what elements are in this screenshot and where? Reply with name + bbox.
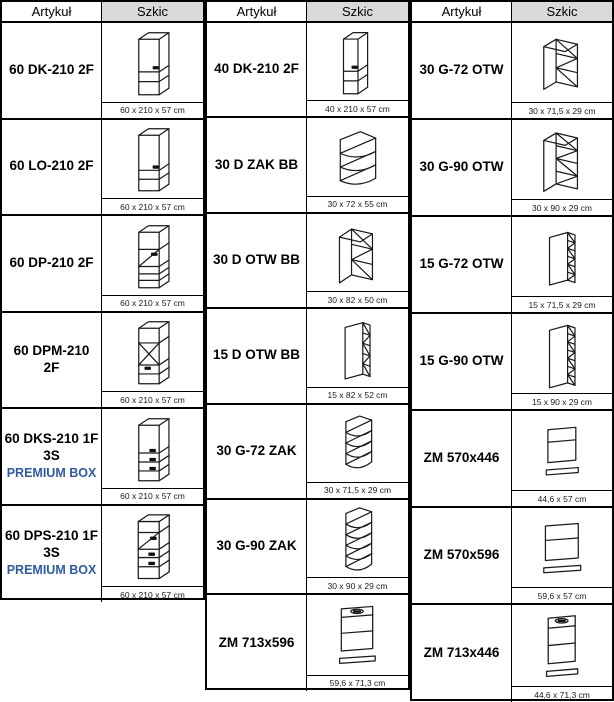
tall-lo-sketch bbox=[102, 120, 203, 199]
front-panel-handle-596-sketch bbox=[307, 595, 408, 674]
dimension-label: 30 x 71,5 x 29 cm bbox=[307, 482, 408, 498]
narrow-base-otw-sketch bbox=[307, 309, 408, 386]
corner-base-zak-sketch bbox=[307, 118, 408, 195]
open-wall-otw-90-sketch bbox=[512, 120, 612, 199]
product-sketch-cell: 44,6 x 57 cm bbox=[512, 411, 612, 506]
dimension-label: 60 x 210 x 57 cm bbox=[102, 198, 203, 214]
product-name-cell: 15 D OTW BB bbox=[207, 309, 307, 402]
dimension-label: 15 x 71,5 x 29 cm bbox=[512, 296, 612, 312]
dimension-label: 59,6 x 71,3 cm bbox=[307, 675, 408, 691]
header-row: Artykuł Szkic bbox=[412, 2, 612, 23]
product-rows: 60 DK-210 2F60 x 210 x 57 cm60 LO-210 2F… bbox=[2, 23, 203, 598]
open-wall-otw-72-sketch bbox=[512, 23, 612, 102]
product-sketch-cell: 59,6 x 71,3 cm bbox=[307, 595, 408, 690]
product-sketch-cell: 30 x 72 x 55 cm bbox=[307, 118, 408, 211]
product-name-cell: ZM 713x596 bbox=[207, 595, 307, 690]
dimension-label: 15 x 90 x 29 cm bbox=[512, 393, 612, 409]
product-sketch-cell: 30 x 82 x 50 cm bbox=[307, 214, 408, 307]
catalog-column-group-3: Artykuł Szkic 30 G-72 OTW30 x 71,5 x 29 … bbox=[410, 0, 614, 701]
product-sketch-cell: 60 x 210 x 57 cm bbox=[102, 216, 203, 311]
dimension-label: 30 x 90 x 29 cm bbox=[512, 199, 612, 215]
product-sketch-cell: 60 x 210 x 57 cm bbox=[102, 120, 203, 215]
product-name: ZM 713x446 bbox=[424, 645, 500, 662]
tall-dpm-sketch bbox=[102, 313, 203, 392]
product-name: 30 G-90 OTW bbox=[419, 159, 503, 176]
product-row: 60 DPS-210 1F 3SPREMIUM BOX60 x 210 x 57… bbox=[2, 506, 203, 603]
product-sketch-cell: 30 x 90 x 29 cm bbox=[307, 500, 408, 593]
product-row: 60 DP-210 2F60 x 210 x 57 cm bbox=[2, 216, 203, 313]
product-name: ZM 713x596 bbox=[219, 635, 295, 652]
corner-wall-zak-90-sketch bbox=[307, 500, 408, 577]
szkic-header: Szkic bbox=[512, 2, 612, 21]
product-rows: 30 G-72 OTW30 x 71,5 x 29 cm30 G-90 OTW3… bbox=[412, 23, 612, 699]
premium-box-label: PREMIUM BOX bbox=[7, 465, 97, 482]
product-row: ZM 713x59659,6 x 71,3 cm bbox=[207, 595, 408, 690]
corner-wall-zak-72-sketch bbox=[307, 405, 408, 482]
catalog-column-group-2: Artykuł Szkic 40 DK-210 2F40 x 210 x 57 … bbox=[205, 0, 410, 690]
premium-box-label: PREMIUM BOX bbox=[7, 562, 97, 579]
product-name-cell: 60 DPM-210 2F bbox=[2, 313, 102, 408]
dimension-label: 59,6 x 57 cm bbox=[512, 587, 612, 603]
dimension-label: 15 x 82 x 52 cm bbox=[307, 387, 408, 403]
artykul-header: Artykuł bbox=[412, 2, 512, 21]
product-sketch-cell: 60 x 210 x 57 cm bbox=[102, 23, 203, 118]
front-panel-446-sketch bbox=[512, 411, 612, 490]
header-row: Artykuł Szkic bbox=[2, 2, 203, 23]
product-row: ZM 713x44644,6 x 71,3 cm bbox=[412, 605, 612, 702]
product-name-cell: 30 G-72 ZAK bbox=[207, 405, 307, 498]
artykul-header: Artykuł bbox=[207, 2, 307, 21]
szkic-header: Szkic bbox=[102, 2, 203, 21]
product-name: 60 DP-210 2F bbox=[9, 255, 93, 272]
product-sketch-cell: 44,6 x 71,3 cm bbox=[512, 605, 612, 702]
product-row: 15 D OTW BB15 x 82 x 52 cm bbox=[207, 309, 408, 404]
product-name: 30 G-72 OTW bbox=[419, 62, 503, 79]
product-row: 15 G-90 OTW15 x 90 x 29 cm bbox=[412, 314, 612, 411]
product-name: 15 G-90 OTW bbox=[419, 353, 503, 370]
product-name: ZM 570x446 bbox=[424, 450, 500, 467]
product-sketch-cell: 30 x 71,5 x 29 cm bbox=[512, 23, 612, 118]
product-name-cell: ZM 570x596 bbox=[412, 508, 512, 603]
product-name: 15 D OTW BB bbox=[213, 347, 300, 364]
product-name: 60 DPS-210 1F 3S bbox=[4, 528, 99, 562]
product-name-cell: 60 LO-210 2F bbox=[2, 120, 102, 215]
product-rows: 40 DK-210 2F40 x 210 x 57 cm30 D ZAK BB3… bbox=[207, 23, 408, 688]
product-row: 15 G-72 OTW15 x 71,5 x 29 cm bbox=[412, 217, 612, 314]
front-panel-596-sketch bbox=[512, 508, 612, 587]
tall-dk-sketch bbox=[102, 23, 203, 102]
product-sketch-cell: 30 x 90 x 29 cm bbox=[512, 120, 612, 215]
product-sketch-cell: 40 x 210 x 57 cm bbox=[307, 23, 408, 116]
product-row: 30 G-90 OTW30 x 90 x 29 cm bbox=[412, 120, 612, 217]
product-row: 30 D OTW BB30 x 82 x 50 cm bbox=[207, 214, 408, 309]
product-name-cell: 30 D OTW BB bbox=[207, 214, 307, 307]
dimension-label: 40 x 210 x 57 cm bbox=[307, 100, 408, 116]
product-name-cell: 60 DPS-210 1F 3SPREMIUM BOX bbox=[2, 506, 102, 603]
product-name: 30 G-72 ZAK bbox=[216, 443, 296, 460]
catalog-column-group-1: Artykuł Szkic 60 DK-210 2F60 x 210 x 57 … bbox=[0, 0, 205, 600]
dimension-label: 44,6 x 71,3 cm bbox=[512, 686, 612, 702]
product-sketch-cell: 60 x 210 x 57 cm bbox=[102, 313, 203, 408]
product-row: 30 G-72 ZAK30 x 71,5 x 29 cm bbox=[207, 405, 408, 500]
product-name: 60 DKS-210 1F 3S bbox=[4, 431, 99, 465]
product-name: 30 G-90 ZAK bbox=[216, 538, 296, 555]
product-row: 40 DK-210 2F40 x 210 x 57 cm bbox=[207, 23, 408, 118]
product-sketch-cell: 15 x 90 x 29 cm bbox=[512, 314, 612, 409]
dimension-label: 44,6 x 57 cm bbox=[512, 490, 612, 506]
header-row: Artykuł Szkic bbox=[207, 2, 408, 23]
product-name-cell: 15 G-90 OTW bbox=[412, 314, 512, 409]
szkic-header: Szkic bbox=[307, 2, 408, 21]
product-sketch-cell: 60 x 210 x 57 cm bbox=[102, 506, 203, 603]
product-row: 60 DK-210 2F60 x 210 x 57 cm bbox=[2, 23, 203, 120]
product-name-cell: 30 G-72 OTW bbox=[412, 23, 512, 118]
product-row: 60 DKS-210 1F 3SPREMIUM BOX60 x 210 x 57… bbox=[2, 409, 203, 506]
product-row: 60 DPM-210 2F60 x 210 x 57 cm bbox=[2, 313, 203, 410]
dimension-label: 60 x 210 x 57 cm bbox=[102, 295, 203, 311]
product-row: 30 G-90 ZAK30 x 90 x 29 cm bbox=[207, 500, 408, 595]
product-row: 30 G-72 OTW30 x 71,5 x 29 cm bbox=[412, 23, 612, 120]
product-row: ZM 570x44644,6 x 57 cm bbox=[412, 411, 612, 508]
front-panel-handle-446-sketch bbox=[512, 605, 612, 686]
product-name-cell: 30 G-90 ZAK bbox=[207, 500, 307, 593]
product-sketch-cell: 15 x 71,5 x 29 cm bbox=[512, 217, 612, 312]
tall-dps-sketch bbox=[102, 506, 203, 587]
product-row: 30 D ZAK BB30 x 72 x 55 cm bbox=[207, 118, 408, 213]
product-sketch-cell: 59,6 x 57 cm bbox=[512, 508, 612, 603]
product-name: 40 DK-210 2F bbox=[214, 61, 299, 78]
dimension-label: 60 x 210 x 57 cm bbox=[102, 586, 203, 602]
artykul-header: Artykuł bbox=[2, 2, 102, 21]
tall-dp-sketch bbox=[102, 216, 203, 295]
product-name-cell: 60 DK-210 2F bbox=[2, 23, 102, 118]
product-row: ZM 570x59659,6 x 57 cm bbox=[412, 508, 612, 605]
catalog-sheet: Artykuł Szkic 60 DK-210 2F60 x 210 x 57 … bbox=[0, 0, 614, 701]
product-name-cell: ZM 570x446 bbox=[412, 411, 512, 506]
dimension-label: 30 x 71,5 x 29 cm bbox=[512, 102, 612, 118]
product-sketch-cell: 60 x 210 x 57 cm bbox=[102, 409, 203, 504]
product-name: ZM 570x596 bbox=[424, 547, 500, 564]
dimension-label: 60 x 210 x 57 cm bbox=[102, 102, 203, 118]
tall-dks-sketch bbox=[102, 409, 203, 488]
product-name: 15 G-72 OTW bbox=[419, 256, 503, 273]
product-sketch-cell: 30 x 71,5 x 29 cm bbox=[307, 405, 408, 498]
dimension-label: 30 x 90 x 29 cm bbox=[307, 577, 408, 593]
product-name: 60 DPM-210 2F bbox=[4, 343, 99, 377]
product-name-cell: 60 DP-210 2F bbox=[2, 216, 102, 311]
product-sketch-cell: 15 x 82 x 52 cm bbox=[307, 309, 408, 402]
open-base-otw-sketch bbox=[307, 214, 408, 291]
dimension-label: 60 x 210 x 57 cm bbox=[102, 488, 203, 504]
product-name: 60 LO-210 2F bbox=[9, 158, 93, 175]
product-name: 30 D ZAK BB bbox=[215, 157, 298, 174]
product-name-cell: ZM 713x446 bbox=[412, 605, 512, 702]
product-name-cell: 15 G-72 OTW bbox=[412, 217, 512, 312]
dimension-label: 30 x 72 x 55 cm bbox=[307, 196, 408, 212]
product-name-cell: 30 D ZAK BB bbox=[207, 118, 307, 211]
product-row: 60 LO-210 2F60 x 210 x 57 cm bbox=[2, 120, 203, 217]
tall-dk-40-sketch bbox=[307, 23, 408, 100]
dimension-label: 60 x 210 x 57 cm bbox=[102, 391, 203, 407]
dimension-label: 30 x 82 x 50 cm bbox=[307, 291, 408, 307]
product-name-cell: 30 G-90 OTW bbox=[412, 120, 512, 215]
narrow-wall-otw-72-sketch bbox=[512, 217, 612, 296]
product-name-cell: 60 DKS-210 1F 3SPREMIUM BOX bbox=[2, 409, 102, 504]
narrow-wall-otw-90-sketch bbox=[512, 314, 612, 393]
product-name: 60 DK-210 2F bbox=[9, 62, 94, 79]
product-name-cell: 40 DK-210 2F bbox=[207, 23, 307, 116]
product-name: 30 D OTW BB bbox=[213, 252, 300, 269]
